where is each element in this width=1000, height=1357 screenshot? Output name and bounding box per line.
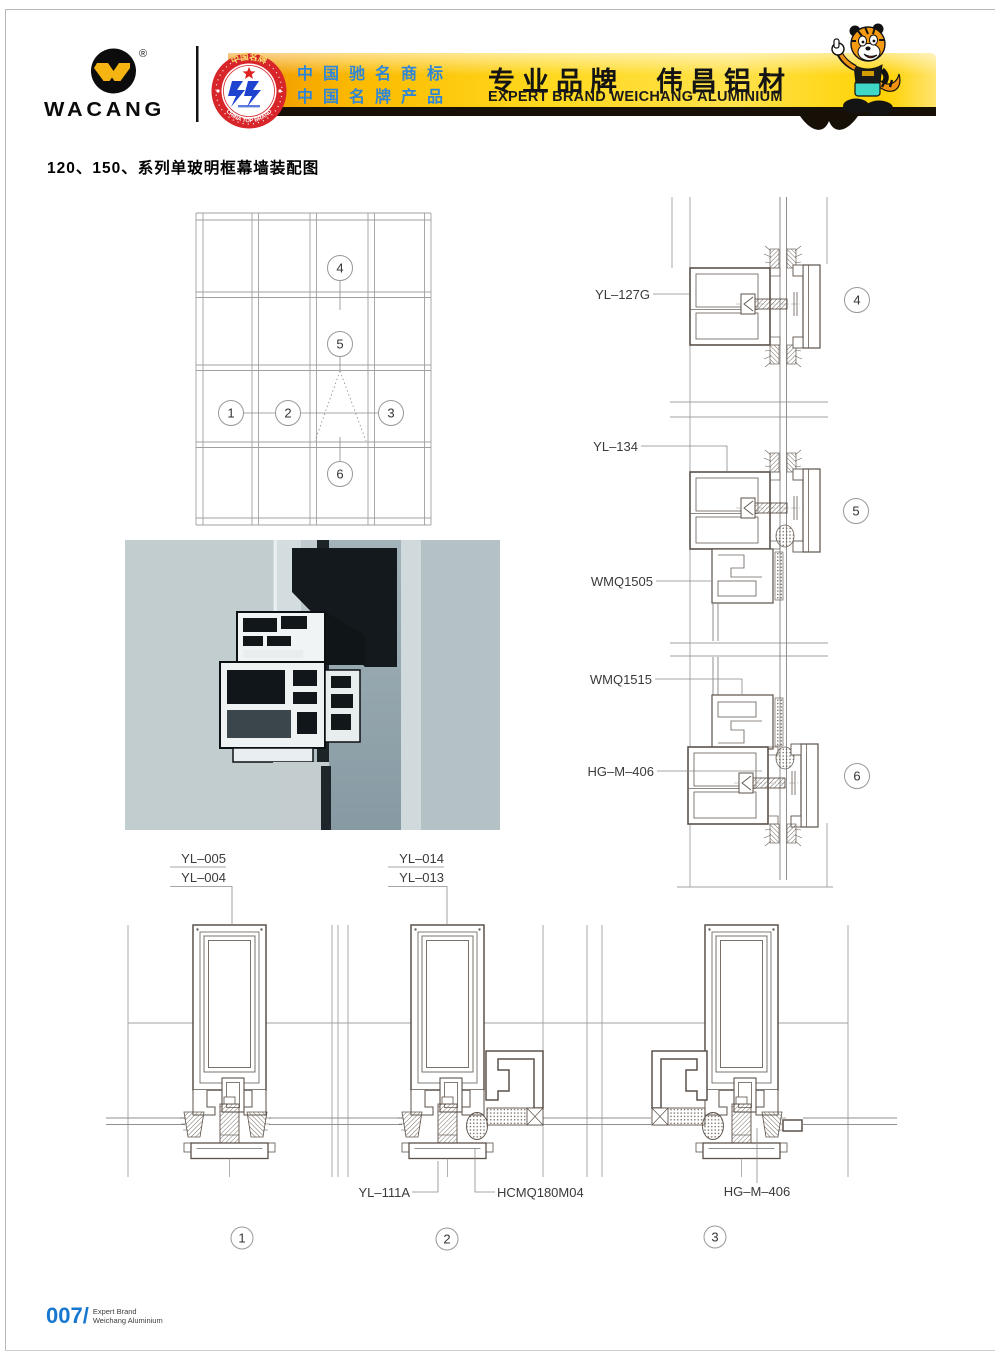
marker-detail-3: 3 [711,1230,718,1245]
marker-3: 3 [387,406,394,421]
marker-detail-6: 6 [853,769,860,784]
svg-text:®: ® [139,48,147,60]
marker-5: 5 [336,337,343,352]
brand-title-en: EXPERT BRAND WEICHANG ALUMINIUM [488,89,783,105]
page-border-bottom [5,1350,995,1351]
detail-1-section [180,925,275,1177]
label-yl127g: YL–127G [595,287,650,302]
elevation-markers: 4 5 1 2 3 6 [219,256,404,487]
page-number: 007/ [46,1305,89,1327]
honor-line-1: 中国驰名商标 [297,60,453,84]
horizontal-section-details: YL–005 YL–004 YL–014 YL–013 YL–111A HCMQ… [90,840,910,1260]
footer-brand-line2: Weichang Aluminium [93,1316,163,1325]
marker-detail-1: 1 [238,1231,245,1246]
label-hgm406-right: HG–M–406 [588,764,654,779]
detail-2-section [398,925,543,1177]
label-yl014: YL–014 [399,851,444,866]
marker-1: 1 [227,406,234,421]
label-wmq1505: WMQ1505 [591,574,653,589]
elevation-diagram: 4 5 1 2 3 6 [180,205,440,530]
label-yl005: YL–005 [181,851,226,866]
vertical-section-details: YL–127G YL–134 WMQ1505 WMQ1515 HG–M–406 … [560,190,1000,890]
footer-brand: Expert Brand Weichang Aluminium [93,1308,163,1325]
detail-4-section [690,246,820,367]
detail-3-section [652,925,802,1177]
marker-4: 4 [336,261,343,276]
label-wmq1515: WMQ1515 [590,672,652,687]
footer: 007/ Expert Brand Weichang Aluminium [46,1305,163,1327]
opening-direction-marks [315,371,366,441]
marker-6: 6 [336,467,343,482]
logo-wordmark: WACANG [44,99,165,122]
label-yl111a: YL–111A [358,1185,410,1200]
ribbon-tail [800,116,858,130]
marker-detail-5: 5 [852,504,859,519]
marker-2: 2 [284,406,291,421]
page-title: 120、150、系列单玻明框幕墙装配图 [47,156,319,178]
detail-6-section [688,657,818,846]
honor-line-2: 中国名牌产品 [297,83,453,107]
marker-detail-4: 4 [853,293,860,308]
label-yl134: YL–134 [593,439,638,454]
label-hgm406-bottom: HG–M–406 [724,1184,790,1199]
label-yl013: YL–013 [399,870,444,885]
profile-photo [125,540,500,830]
window-jamb-left [652,1051,707,1108]
label-yl004: YL–004 [181,870,226,885]
page-border-left [5,9,6,1351]
window-jamb-right [486,1051,543,1108]
marker-detail-2: 2 [443,1232,450,1247]
catalog-page: ® WACANG [0,0,1000,1357]
detail-5-section [690,450,820,641]
label-hcmq180m04: HCMQ180M04 [497,1185,584,1200]
